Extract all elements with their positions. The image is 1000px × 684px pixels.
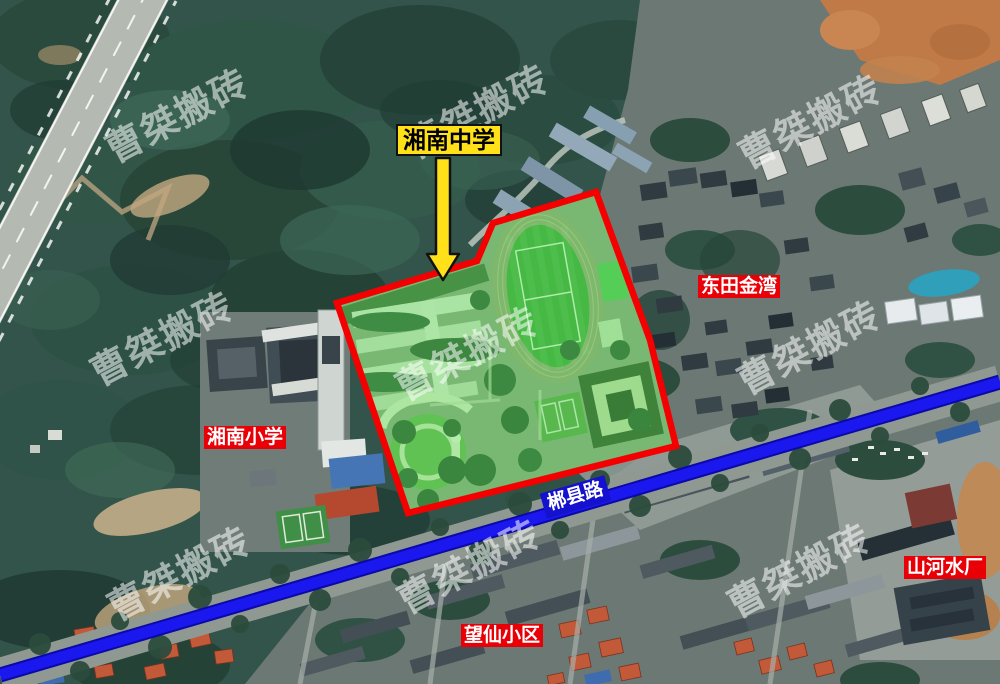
satellite-base <box>0 0 1000 684</box>
label-dongtian-jinwan: 东田金湾 <box>698 275 780 298</box>
label-xiangnan-middle-school: 湘南中学 <box>396 124 502 156</box>
label-shanhe-water-plant: 山河水厂 <box>904 556 986 579</box>
label-wangxian-estate: 望仙小区 <box>461 624 543 647</box>
satellite-map: 曹桀搬砖 曹桀搬砖 曹桀搬砖 曹桀搬砖 曹桀搬砖 曹桀搬砖 曹桀搬砖 曹桀搬砖 … <box>0 0 1000 684</box>
label-xiangnan-primary-school: 湘南小学 <box>204 426 286 449</box>
